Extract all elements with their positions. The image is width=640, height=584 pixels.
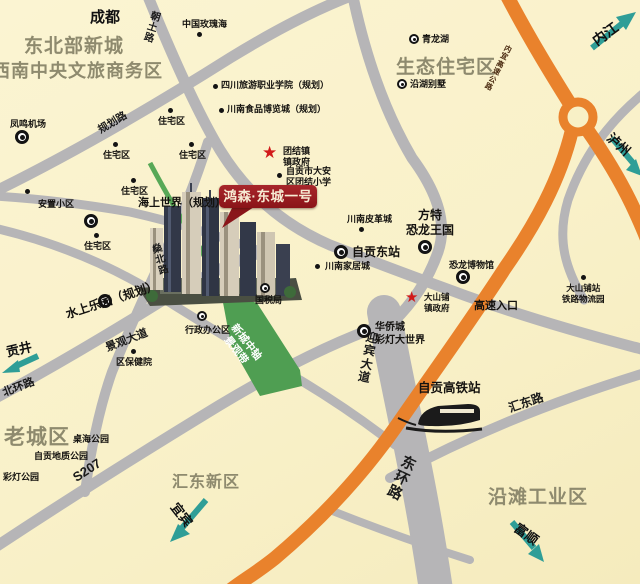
poi-17-dot-core — [264, 287, 267, 290]
district-northeast-newtown: 东北部新城 — [24, 31, 124, 58]
poi-lakeside-villa: 沿湖别墅 — [410, 79, 446, 90]
poi-21-dot — [315, 264, 320, 269]
poi-4-dot-core — [401, 83, 404, 86]
poi-highway-entrance: 高速入口 — [474, 300, 518, 314]
expressway-north — [505, 0, 570, 104]
tower — [220, 212, 239, 296]
poi-13-dot — [277, 173, 282, 178]
poi-dinosaur-museum: 恐龙博物馆 — [449, 260, 494, 271]
poi-residential-d: 住宅区 — [121, 186, 148, 197]
poi-11-dot — [25, 189, 30, 194]
city-chengdu: 成都 — [90, 6, 120, 27]
district-eco-residential: 生态住宅区 — [396, 52, 496, 79]
poi-5-dot-core — [20, 135, 25, 140]
government-star-icon: ★ — [262, 144, 277, 161]
poi-19-dot — [359, 227, 364, 232]
arrow-gongjing-head — [2, 360, 20, 373]
poi-22-dot-core — [423, 245, 428, 250]
poi-fantawild: 方特 恐龙王国 — [406, 208, 454, 238]
poi-oct-line2: 彩灯大世界 — [375, 335, 425, 348]
poi-tuanjie-gov-line1: 团结镇 — [283, 146, 310, 157]
tower-shade — [168, 206, 171, 292]
tower-shade — [206, 198, 209, 296]
poi-1-dot — [213, 84, 218, 89]
poi-tuanjie-school-line1: 自贡市大安 — [286, 166, 331, 177]
poi-dashanpu-gov-line2: 镇政府 — [424, 303, 450, 314]
poi-fantawild-line2: 恐龙王国 — [406, 223, 454, 238]
poi-26-dot — [581, 275, 586, 280]
government-star-icon: ★ — [405, 290, 418, 305]
district-yantan-industrial: 沿滩工业区 — [488, 482, 588, 509]
poi-qinglong-lake: 青龙湖 — [422, 34, 449, 45]
poi-23-dot-core — [461, 275, 466, 280]
poi-fengming-airport: 凤鸣机场 — [10, 119, 46, 130]
poi-5-dot — [15, 130, 29, 144]
poi-zhuohai-park: 桌海公园 — [73, 434, 109, 445]
train-body — [418, 404, 480, 426]
poi-6-dot — [168, 108, 173, 113]
tower — [202, 198, 219, 296]
poi-16-dot — [131, 349, 136, 354]
poi-3-dot-core — [413, 38, 416, 41]
poi-food-expo: 川南食品博览城（规划） — [227, 104, 326, 115]
poi-7-dot — [113, 142, 118, 147]
poi-27-dot-core — [362, 329, 367, 334]
district-huidong-new-area: 汇东新区 — [172, 468, 240, 492]
tree — [284, 286, 296, 298]
tower — [164, 206, 181, 292]
poi-leather-city: 川南皮革城 — [347, 214, 392, 225]
tower — [240, 222, 256, 296]
poi-sea-world: 海上世界（规划） — [138, 197, 226, 211]
road-bottom-cross — [325, 508, 470, 560]
poi-tax-bureau: 国税局 — [255, 295, 282, 306]
poi-4-dot — [397, 79, 407, 89]
poi-8-dot — [189, 142, 194, 147]
poi-23-dot — [456, 270, 470, 284]
station-label: 自贡高铁站 — [418, 381, 481, 397]
poi-14-dot-core — [89, 219, 94, 224]
poi-residential-e: 住宅区 — [84, 241, 111, 252]
poi-health-center: 区保健院 — [116, 357, 152, 368]
poi-zigong-east-station: 自贡东站 — [352, 245, 400, 260]
poi-resettlement: 安置小区 — [38, 199, 74, 210]
poi-dashanpu-gov-line1: 大山铺 — [424, 292, 450, 303]
train-underline — [406, 428, 482, 431]
poi-lantern-park: 彩灯公园 — [3, 472, 39, 483]
poi-18-dot-core — [201, 315, 204, 318]
poi-residential-a: 住宅区 — [158, 116, 185, 127]
poi-dashanpu-logistics: 大山铺站 铁路物流园 — [562, 283, 605, 304]
poi-10-dot — [94, 233, 99, 238]
poi-oct-line1: 华侨城 — [375, 322, 425, 335]
interchange-roundabout — [563, 102, 593, 132]
poi-20-dot — [334, 245, 348, 259]
poi-14-dot — [84, 214, 98, 228]
district-old-town: 老城区 — [4, 421, 70, 451]
poi-geology-park: 自贡地质公园 — [34, 451, 88, 462]
poi-oct-lantern-world: 华侨城 彩灯大世界 — [375, 322, 425, 347]
poi-22-dot — [418, 240, 432, 254]
poi-dashanpu-logistics-line1: 大山铺站 — [562, 283, 605, 294]
poi-tourism-college: 四川旅游职业学院（规划） — [221, 80, 329, 91]
poi-27-dot — [357, 324, 371, 338]
poi-residential-b: 住宅区 — [103, 150, 130, 161]
poi-dashanpu-logistics-line2: 铁路物流园 — [562, 294, 605, 305]
poi-20-dot-core — [339, 250, 344, 255]
poi-9-dot — [131, 178, 136, 183]
poi-rose-sea: 中国玫瑰海 — [182, 19, 227, 30]
district-southwest-cbd: 西南中央文旅商务区 — [0, 57, 163, 83]
train-windows — [440, 409, 474, 413]
poi-furniture-city: 川南家居城 — [325, 261, 370, 272]
poi-dashanpu-gov: 大山铺 镇政府 — [424, 292, 450, 313]
poi-residential-c: 住宅区 — [179, 150, 206, 161]
poi-17-dot — [260, 283, 270, 293]
poi-0-dot — [197, 32, 202, 37]
poi-18-dot — [197, 311, 207, 321]
poi-2-dot — [219, 108, 224, 113]
poi-fantawild-line1: 方特 — [406, 208, 454, 223]
poi-3-dot — [409, 34, 419, 44]
location-map: 东北部新城 西南中央文旅商务区 生态住宅区 老城区 汇东新区 沿滩工业区 成都 … — [0, 0, 640, 584]
project-badge: 鸿森·东城一号 — [219, 185, 317, 208]
